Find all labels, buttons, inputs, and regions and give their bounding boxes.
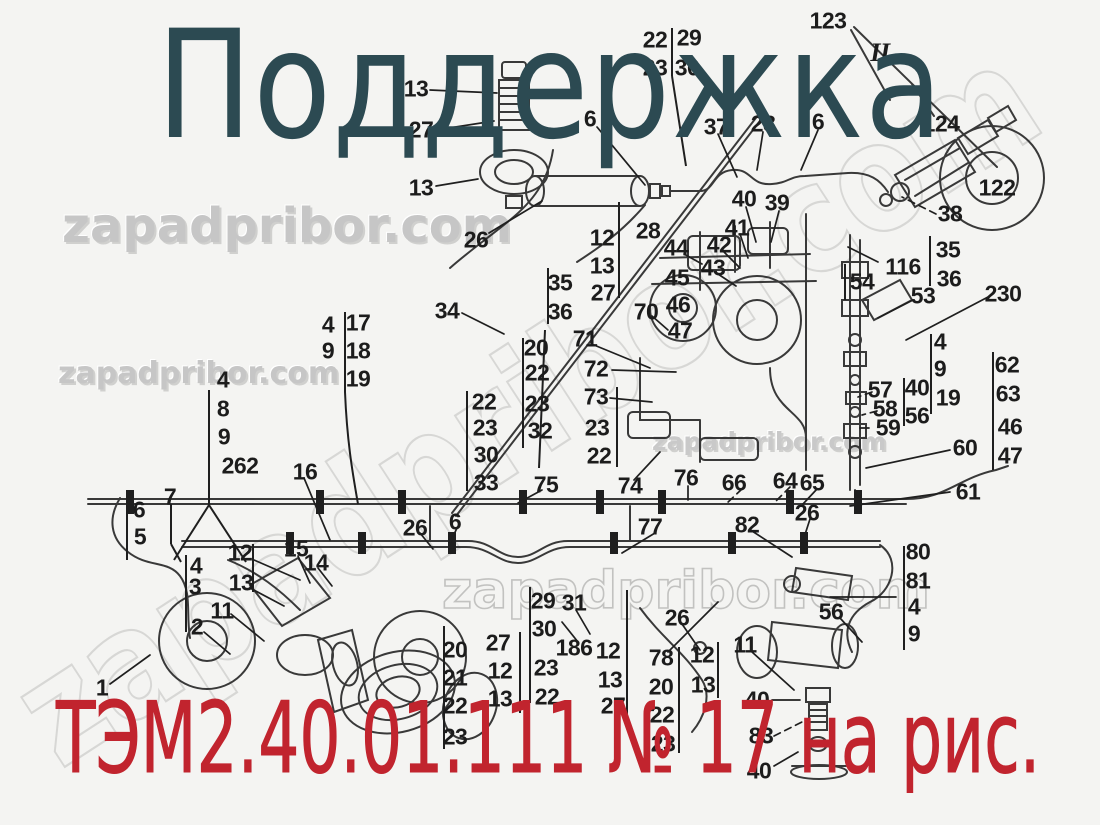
part-label: 61	[956, 479, 981, 506]
part-label: 5	[134, 524, 146, 551]
part-label: 6	[449, 509, 461, 536]
part-label: 26	[795, 500, 820, 527]
part-label: 30	[532, 616, 557, 643]
page-title: Поддержка	[0, 8, 1100, 166]
part-label: 22	[525, 360, 550, 387]
part-label: 40	[732, 186, 757, 213]
part-label: 13	[590, 253, 615, 280]
part-label: 186	[556, 635, 593, 662]
part-label: 72	[584, 356, 609, 383]
part-label: 62	[995, 352, 1020, 379]
part-label: 31	[562, 590, 587, 617]
part-label: 34	[435, 298, 460, 325]
part-label: 46	[666, 292, 691, 319]
part-label: 26	[464, 227, 489, 254]
part-label: 44	[664, 235, 689, 262]
part-label: 23	[585, 415, 610, 442]
part-label: 230	[985, 281, 1022, 308]
part-label: 12	[488, 658, 513, 685]
part-label: 27	[486, 630, 511, 657]
part-label: 4	[908, 594, 920, 621]
part-label: 12	[228, 540, 253, 567]
part-label: 9	[218, 424, 230, 451]
part-label: 33	[474, 470, 499, 497]
part-label: 9	[908, 621, 920, 648]
part-label: 53	[911, 283, 936, 310]
part-label: 66	[722, 470, 747, 497]
part-label: 4	[217, 367, 229, 394]
figure-caption: ТЭМ2.40.01.111 № 17 на рис.	[56, 690, 1100, 788]
part-label: 9	[934, 356, 946, 383]
part-label: 32	[528, 418, 553, 445]
part-label: 35	[548, 270, 573, 297]
part-label: 19	[936, 385, 961, 412]
page-title-text: Поддержка	[156, 8, 943, 166]
part-label: 4	[934, 329, 946, 356]
part-label: 80	[906, 539, 931, 566]
part-label: 76	[674, 465, 699, 492]
part-label: 64	[773, 468, 798, 495]
part-label: 22	[587, 443, 612, 470]
part-label: 36	[937, 266, 962, 293]
part-label: 54	[850, 269, 875, 296]
part-label: 26	[665, 605, 690, 632]
part-label: 122	[979, 175, 1016, 202]
part-label: 47	[998, 443, 1023, 470]
part-label: 74	[618, 473, 643, 500]
part-label: 40	[905, 375, 930, 402]
part-label: 75	[534, 472, 559, 499]
part-label: 82	[735, 512, 760, 539]
part-label: 12	[590, 225, 615, 252]
part-label: 116	[885, 254, 921, 281]
part-label: 23	[473, 415, 498, 442]
part-label: 20	[524, 335, 549, 362]
part-label: 36	[548, 299, 573, 326]
part-label: 60	[953, 435, 978, 462]
part-label: 14	[304, 550, 329, 577]
part-label: 65	[800, 470, 825, 497]
part-label: 63	[996, 381, 1021, 408]
part-label: 8	[217, 396, 229, 423]
part-label: 262	[222, 453, 259, 480]
part-label: 4	[322, 312, 334, 339]
part-label: 3	[189, 574, 201, 601]
part-label: 73	[584, 384, 609, 411]
part-label: 59	[876, 415, 901, 442]
part-label: 38	[938, 201, 963, 228]
part-label: 71	[573, 326, 598, 353]
part-label: 56	[905, 403, 930, 430]
screenshot-root: zapadpribor.com zapadpribor.com zapadpri…	[0, 0, 1100, 825]
part-label: 29	[531, 588, 556, 615]
part-label: 17	[346, 310, 371, 337]
part-label: 2	[191, 614, 203, 641]
part-label: 46	[998, 414, 1023, 441]
part-label: 26	[403, 515, 428, 542]
part-label: 81	[906, 568, 931, 595]
part-label: 19	[346, 366, 371, 393]
part-label: 7	[164, 484, 176, 511]
figure-caption-text: ТЭМ2.40.01.111 № 17 на рис.	[56, 690, 1040, 788]
part-label: 12	[596, 638, 621, 665]
part-label: 22	[472, 389, 497, 416]
part-label: 18	[346, 338, 371, 365]
part-label: 70	[634, 299, 659, 326]
part-label: 11	[733, 632, 756, 659]
part-label: 16	[293, 459, 318, 486]
part-label: 23	[534, 655, 559, 682]
part-label: 13	[409, 175, 434, 202]
part-label: 13	[229, 570, 254, 597]
part-label: 11	[210, 598, 233, 625]
part-label: 78	[649, 645, 674, 672]
part-label: 39	[765, 190, 790, 217]
part-label: 28	[636, 218, 661, 245]
part-label: 77	[638, 514, 663, 541]
part-label: 43	[701, 255, 726, 282]
part-label: 20	[443, 637, 468, 664]
part-label: 47	[668, 318, 693, 345]
part-label: 6	[133, 497, 145, 524]
part-label: 45	[665, 265, 690, 292]
part-label: 30	[474, 442, 499, 469]
part-label: 9	[322, 338, 334, 365]
part-label: 56	[819, 599, 844, 626]
part-label: 35	[936, 237, 961, 264]
part-label: 23	[525, 391, 550, 418]
part-label: 12	[690, 642, 715, 669]
part-label: 27	[591, 280, 616, 307]
